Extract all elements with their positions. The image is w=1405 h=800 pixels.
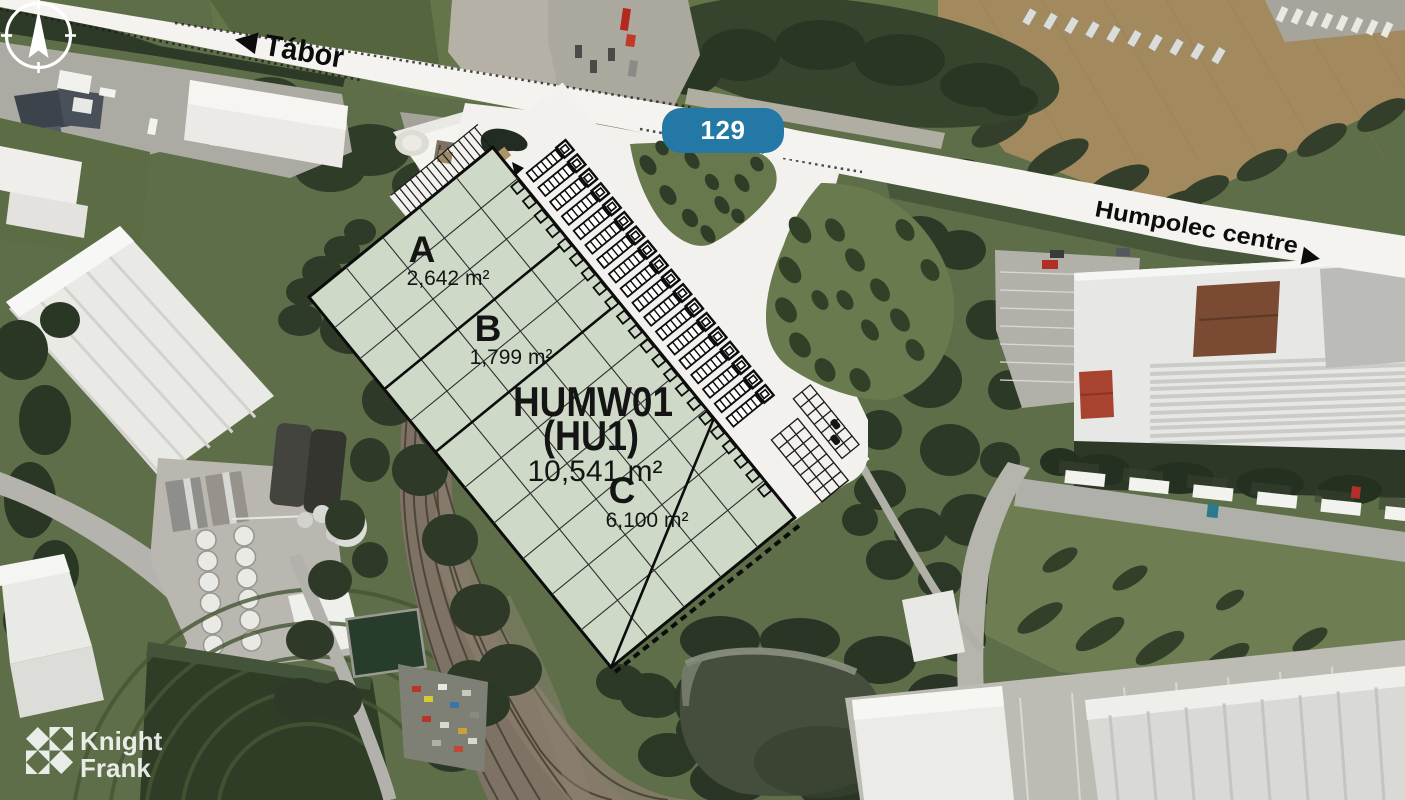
svg-text:A: A <box>409 229 436 270</box>
svg-text:Frank: Frank <box>80 753 151 783</box>
svg-text:(HU1): (HU1) <box>543 412 639 459</box>
svg-text:6,100 m²: 6,100 m² <box>606 509 689 532</box>
svg-text:2,642 m²: 2,642 m² <box>407 267 490 290</box>
svg-text:Knight: Knight <box>80 726 163 756</box>
svg-text:129: 129 <box>701 115 746 145</box>
svg-text:1,799 m²: 1,799 m² <box>470 346 553 369</box>
svg-text:C: C <box>609 470 636 511</box>
svg-text:10,541 m²: 10,541 m² <box>527 455 662 488</box>
svg-text:B: B <box>475 308 502 349</box>
